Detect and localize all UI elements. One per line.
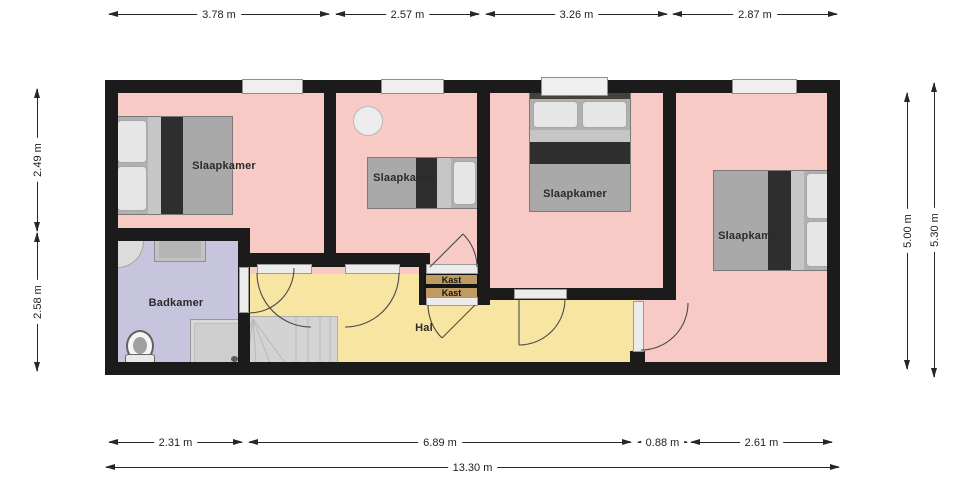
bed-mattress xyxy=(148,117,161,214)
dimension-bottom-4: 2.61 m xyxy=(690,437,833,449)
vanity-sink xyxy=(159,241,201,258)
dimension-label: 3.78 m xyxy=(197,9,241,21)
room-label-hall: Hal xyxy=(415,322,433,334)
pillow xyxy=(582,101,627,128)
dimension-label: 6.89 m xyxy=(418,437,462,449)
arrow-left-icon xyxy=(34,222,40,232)
wall-bedroom3-hall xyxy=(477,288,676,300)
arrow-right-icon xyxy=(470,11,480,17)
dimension-right-2: 5.30 m xyxy=(929,82,941,378)
wall-bathroom-top xyxy=(105,228,250,241)
toilet-seat xyxy=(133,337,147,354)
room-label-bedroom-left: Slaapkamer xyxy=(192,160,256,172)
dimension-label: 2.31 m xyxy=(154,437,198,449)
dimension-label: 3.26 m xyxy=(555,9,599,21)
dimension-bottom-2: 6.89 m xyxy=(248,437,632,449)
bed-blanket xyxy=(714,171,768,270)
bed-mattress xyxy=(530,130,630,142)
arrow-left-icon xyxy=(108,439,118,445)
dimension-label: 2.61 m xyxy=(740,437,784,449)
door-bedroom1 xyxy=(257,264,312,274)
dimension-label: 2.87 m xyxy=(733,9,777,21)
bed-blanket-fold xyxy=(768,171,791,270)
dimension-top-2: 2.57 m xyxy=(335,9,480,21)
dimension-label: 5.30 m xyxy=(929,208,941,252)
floor-plan-canvas: Kast Kast Slaapkamer Slaapkamer Slaapkam… xyxy=(0,0,960,487)
arrow-left-icon xyxy=(672,11,682,17)
closet-bottom-label: Kast xyxy=(442,288,462,298)
dimension-top-4: 2.87 m xyxy=(672,9,838,21)
dimension-label: 13.30 m xyxy=(448,462,498,474)
hall-floor-right xyxy=(490,300,637,362)
bed-mattress xyxy=(437,158,451,208)
door-bedroom3 xyxy=(514,289,567,299)
arrow-right-icon xyxy=(931,82,937,92)
staircase-steps xyxy=(247,317,337,363)
dimension-left-2: 2.58 m xyxy=(32,232,44,372)
dimension-total-width: 13.30 m xyxy=(105,462,840,474)
dimension-top-3: 3.26 m xyxy=(485,9,668,21)
pillow xyxy=(533,101,578,128)
closet-top: Kast xyxy=(424,273,479,286)
door-closet-bottom xyxy=(426,297,478,306)
wall-bedroom3-bedroom4 xyxy=(663,93,676,300)
dimension-label: 2.49 m xyxy=(32,138,44,182)
door-closet-top xyxy=(426,264,478,274)
wall-outer-bottom xyxy=(105,362,840,375)
arrow-left-icon xyxy=(105,464,115,470)
dimension-label: 5.00 m xyxy=(902,209,914,253)
ceiling-lamp-icon xyxy=(353,106,383,136)
door-bedroom4 xyxy=(633,301,644,352)
arrow-right-icon xyxy=(320,11,330,17)
arrow-right-icon xyxy=(823,439,833,445)
arrow-left-icon xyxy=(931,368,937,378)
wall-bedroom1-bedroom2 xyxy=(324,93,336,267)
room-label-bedroom-back: Slaapkamer xyxy=(543,188,607,200)
wall-outer-top xyxy=(105,80,840,93)
pillow xyxy=(117,120,147,163)
staircase xyxy=(247,316,338,363)
arrow-right-icon xyxy=(830,464,840,470)
bed-blanket-fold xyxy=(161,117,183,214)
window-bedroom3 xyxy=(541,77,608,96)
pillow xyxy=(117,166,147,211)
arrow-left-icon xyxy=(34,362,40,372)
arrow-right-icon xyxy=(34,88,40,98)
room-label-bedroom-right: Slaapkamer xyxy=(718,230,782,242)
arrow-left-icon xyxy=(485,11,495,17)
dimension-label: 2.57 m xyxy=(386,9,430,21)
arrow-left-icon xyxy=(335,11,345,17)
window-bedroom1 xyxy=(242,79,303,94)
arrow-right-icon xyxy=(658,11,668,17)
dimension-bottom-3: 0.88 m xyxy=(637,437,688,449)
wall-hall-bedroom4-stub xyxy=(630,351,645,362)
closet-top-label: Kast xyxy=(442,275,462,285)
window-bedroom2 xyxy=(381,79,444,94)
door-bathroom xyxy=(239,267,249,313)
dimension-label: 0.88 m xyxy=(641,437,685,449)
wall-outer-right xyxy=(827,80,840,375)
bed-blanket-fold xyxy=(530,142,630,164)
arrow-left-icon xyxy=(904,360,910,370)
arrow-left-icon xyxy=(108,11,118,17)
dimension-top-1: 3.78 m xyxy=(108,9,330,21)
bed-mattress xyxy=(791,171,804,270)
pillow xyxy=(453,161,476,205)
dimension-right-1: 5.00 m xyxy=(902,92,914,370)
arrow-left-icon xyxy=(248,439,258,445)
arrow-right-icon xyxy=(828,11,838,17)
arrow-right-icon xyxy=(622,439,632,445)
arrow-left-icon xyxy=(690,439,700,445)
room-label-bathroom: Badkamer xyxy=(149,297,204,309)
bed-double-right xyxy=(713,170,838,271)
dimension-label: 2.58 m xyxy=(32,280,44,324)
arrow-right-icon xyxy=(904,92,910,102)
dimension-left-1: 2.49 m xyxy=(32,88,44,232)
dimension-bottom-1: 2.31 m xyxy=(108,437,243,449)
window-bedroom4 xyxy=(732,79,797,94)
room-label-bedroom-mid: Slaapkamer xyxy=(373,172,437,184)
arrow-right-icon xyxy=(233,439,243,445)
door-bedroom2 xyxy=(345,264,400,274)
arrow-right-icon xyxy=(34,232,40,242)
